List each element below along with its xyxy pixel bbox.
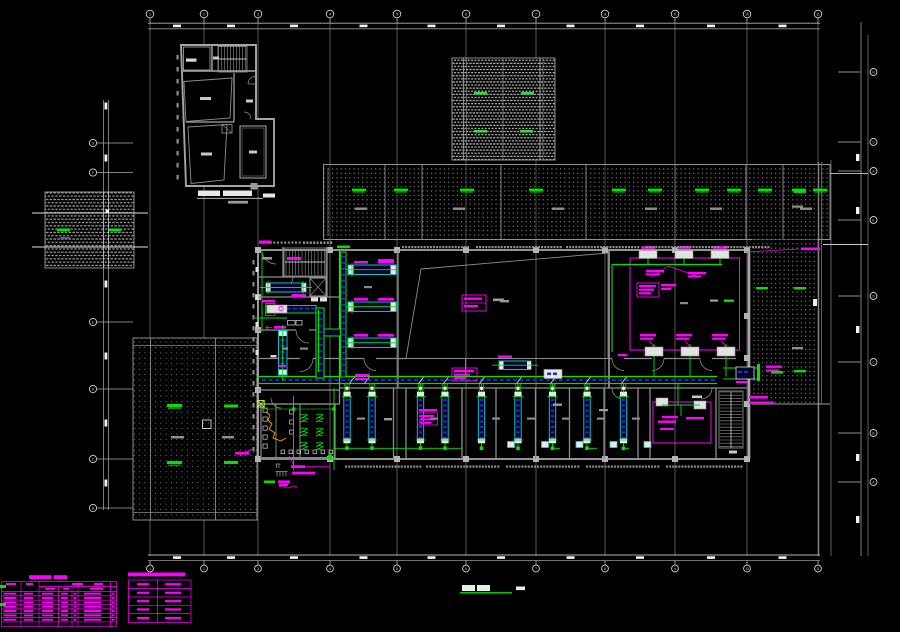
svg-text:B: B [872,432,874,436]
svg-text:5: 5 [396,13,398,17]
svg-text:7: 7 [535,13,537,17]
svg-text:4: 4 [329,13,331,17]
svg-text:11: 11 [816,13,820,17]
svg-text:3: 3 [257,13,259,17]
svg-text:3: 3 [257,567,259,571]
svg-text:1: 1 [149,567,151,571]
svg-text:11: 11 [816,567,820,571]
svg-text:B: B [92,507,94,511]
svg-text:E: E [872,219,874,223]
svg-text:2: 2 [203,567,205,571]
svg-text:2: 2 [203,13,205,17]
svg-text:10: 10 [745,13,749,17]
svg-text:7: 7 [535,567,537,571]
svg-text:F: F [92,171,94,175]
svg-text:9: 9 [674,567,676,571]
svg-text:6: 6 [465,13,467,17]
svg-text:9: 9 [674,13,676,17]
svg-text:1: 1 [149,13,151,17]
svg-text:6: 6 [465,567,467,571]
svg-text:E: E [92,321,94,325]
svg-text:10: 10 [745,567,749,571]
svg-text:8: 8 [604,13,606,17]
svg-text:5: 5 [396,567,398,571]
svg-text:8: 8 [604,567,606,571]
svg-text:F: F [873,170,875,174]
svg-text:4: 4 [329,567,331,571]
